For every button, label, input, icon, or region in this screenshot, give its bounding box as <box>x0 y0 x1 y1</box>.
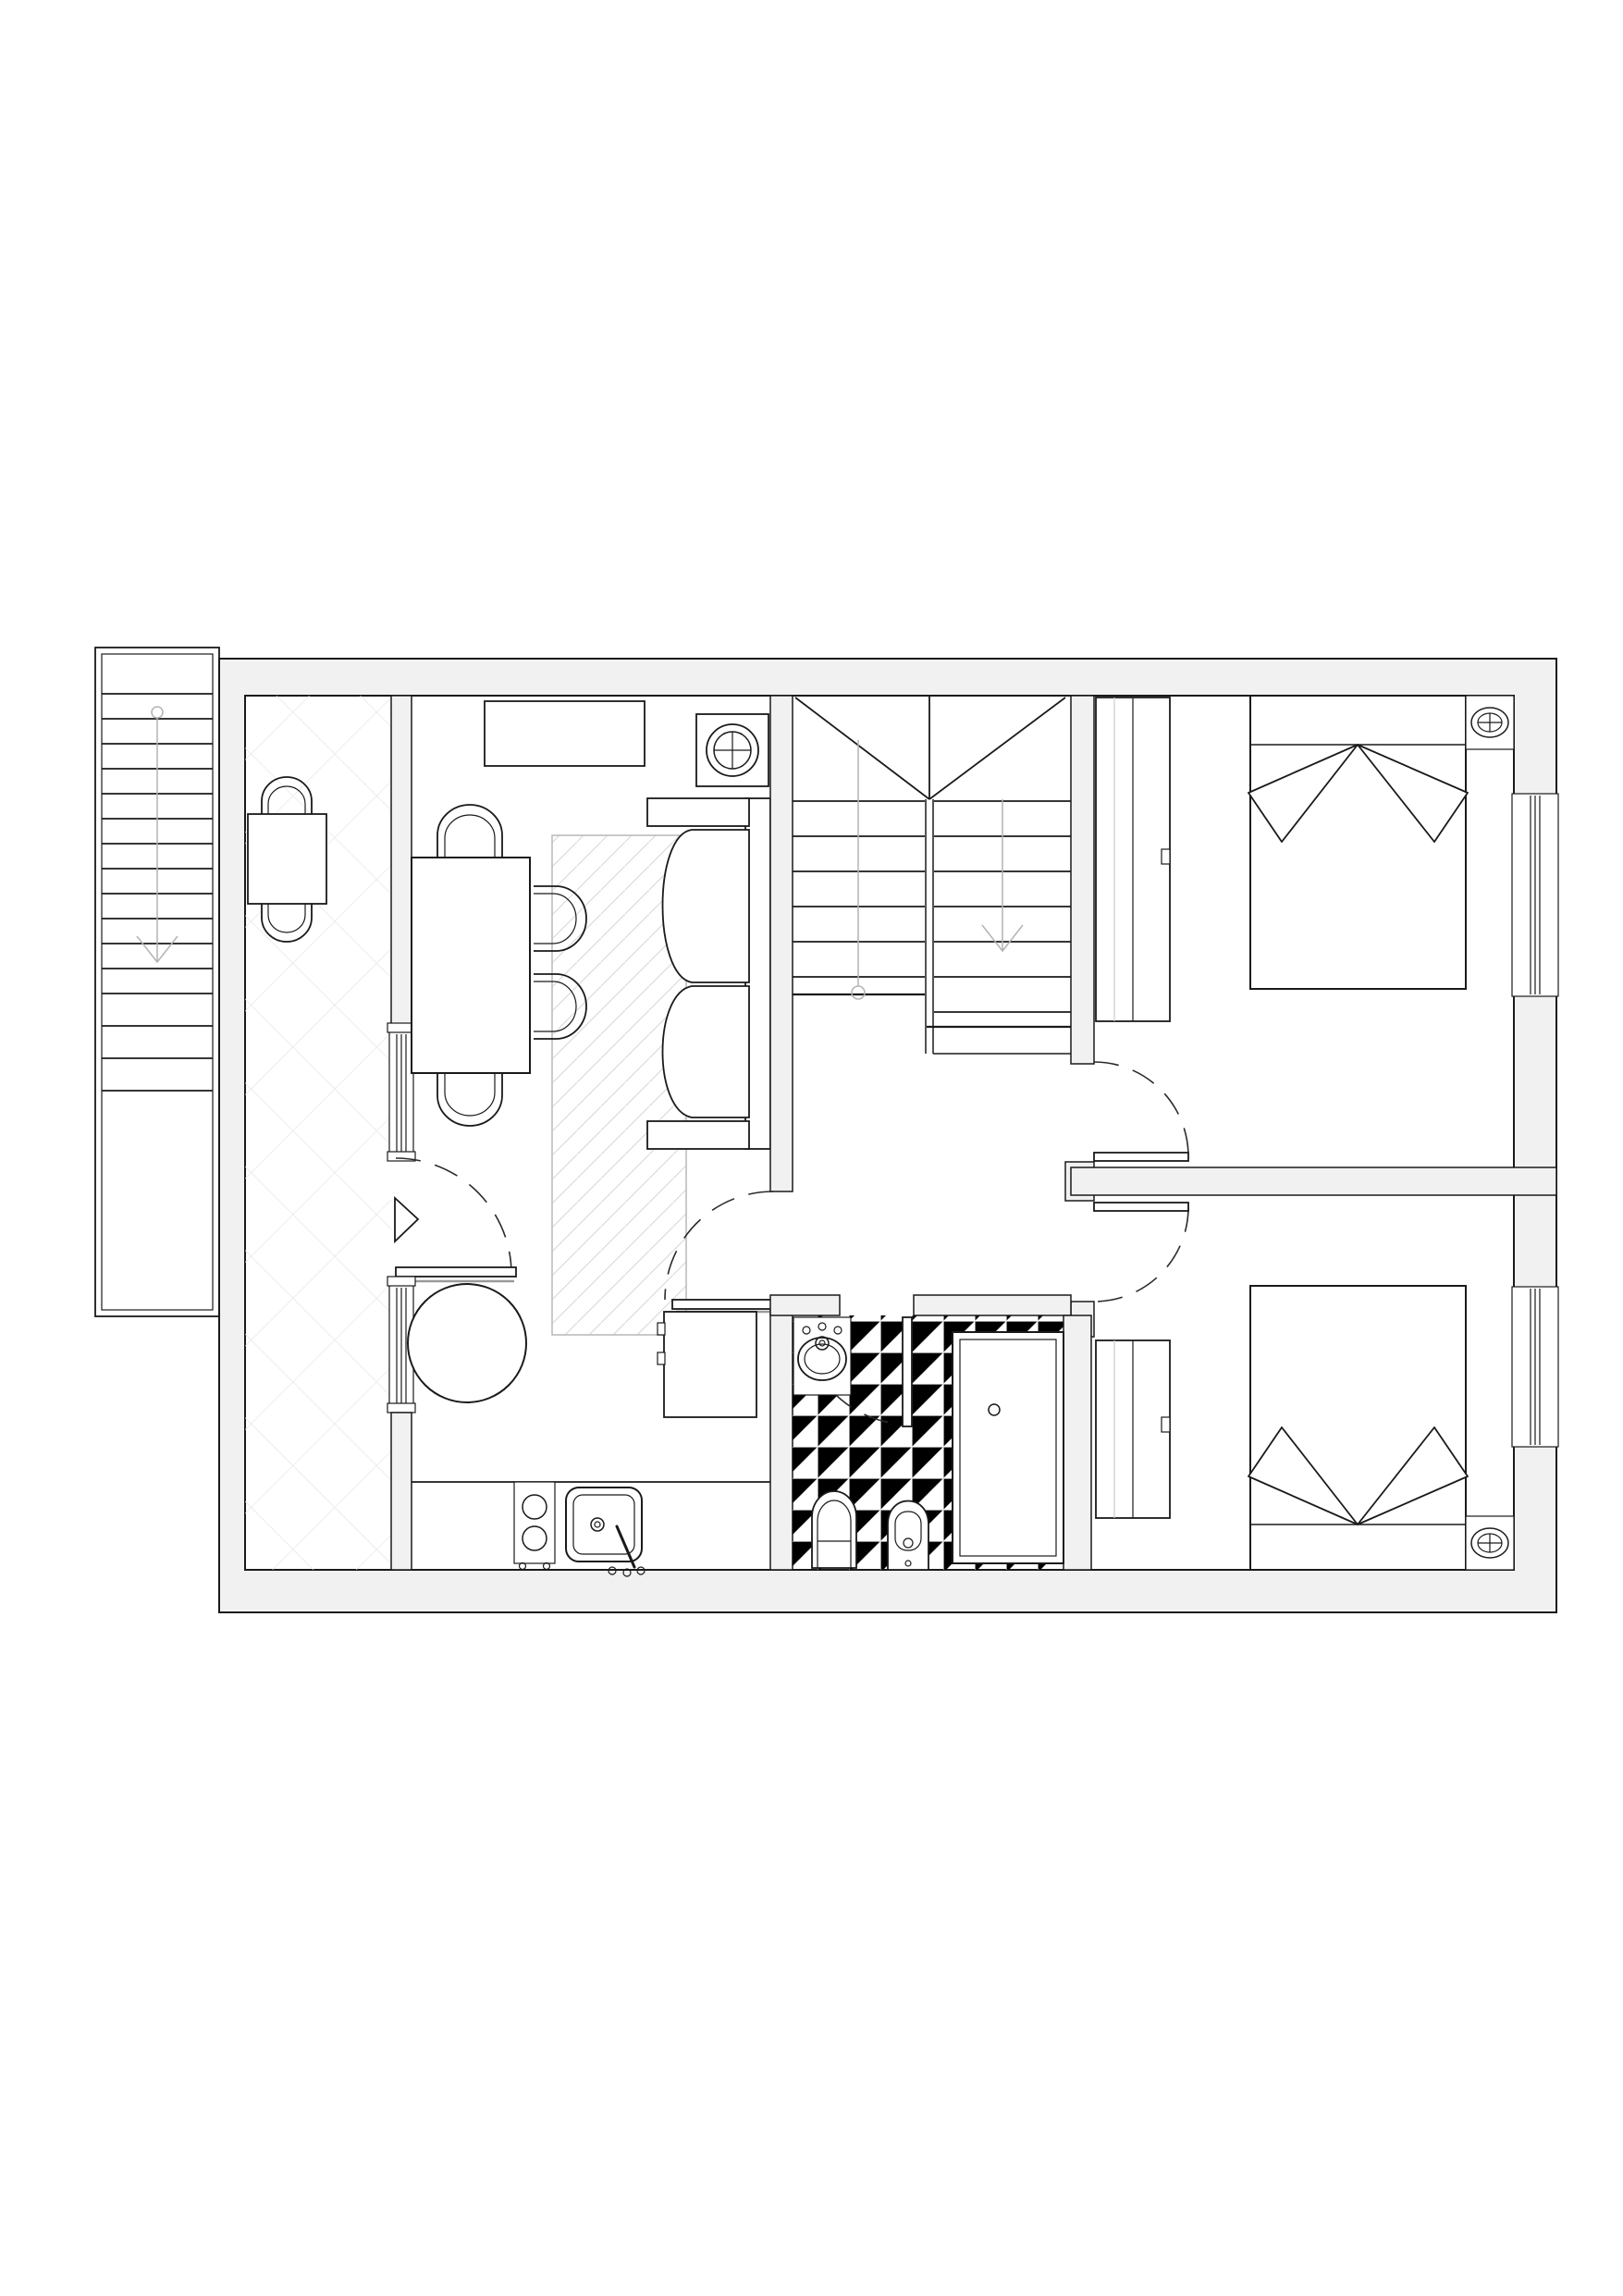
dining-table <box>412 858 530 1073</box>
bathroom-wall-right <box>914 1295 1071 1315</box>
entrance-door-leaf <box>396 1267 516 1277</box>
washbasin <box>793 1317 851 1395</box>
shower <box>953 1332 1064 1563</box>
stair-bedroom-wall <box>1071 696 1094 1064</box>
round-table <box>408 1284 526 1402</box>
bedroom-top-window <box>1512 794 1558 996</box>
living-room-door-leaf <box>672 1300 773 1309</box>
floor-plan-drawing: Architectural apartment floor plan, blac… <box>0 0 1623 2296</box>
terrace <box>245 696 391 1570</box>
cooktop <box>514 1482 555 1570</box>
double-bed <box>1248 696 1468 989</box>
toilet <box>812 1491 856 1568</box>
terrace-wall-upper <box>391 696 412 1030</box>
sofa-armrest <box>647 798 749 826</box>
wardrobe <box>1096 697 1170 1021</box>
ceiling-light-icon <box>696 714 768 786</box>
double-bed <box>1248 1286 1468 1570</box>
bathroom-wall-left <box>770 1295 840 1315</box>
refrigerator <box>658 1312 756 1417</box>
terrace-table <box>248 814 326 904</box>
bathroom <box>770 1295 1091 1570</box>
bedroom-bottom-window <box>1512 1287 1558 1447</box>
wardrobe <box>1096 1340 1170 1518</box>
sideboard <box>485 701 645 766</box>
ceiling-light-icon <box>1466 1516 1514 1570</box>
bathroom-door-leaf <box>903 1317 912 1426</box>
sofa-cushion <box>663 986 750 1117</box>
kitchen-bath-wall <box>770 1309 793 1570</box>
bidet <box>888 1501 928 1571</box>
bathroom-bedroom-wall <box>1064 1315 1091 1570</box>
terrace-wall-lower <box>391 1413 412 1570</box>
bedroom-divider-wall <box>1071 1167 1556 1195</box>
bedroom-top <box>1096 696 1514 1021</box>
floor-plan-page: Architectural apartment floor plan, blac… <box>0 0 1623 2296</box>
living-hall-wall <box>770 696 793 1191</box>
sofa-cushion <box>663 830 750 982</box>
bedroom-bottom-door-leaf <box>1094 1203 1188 1211</box>
ceiling-light-icon <box>1466 696 1514 749</box>
bedroom-top-door-leaf <box>1094 1153 1188 1161</box>
sofa-armrest <box>647 1121 749 1149</box>
